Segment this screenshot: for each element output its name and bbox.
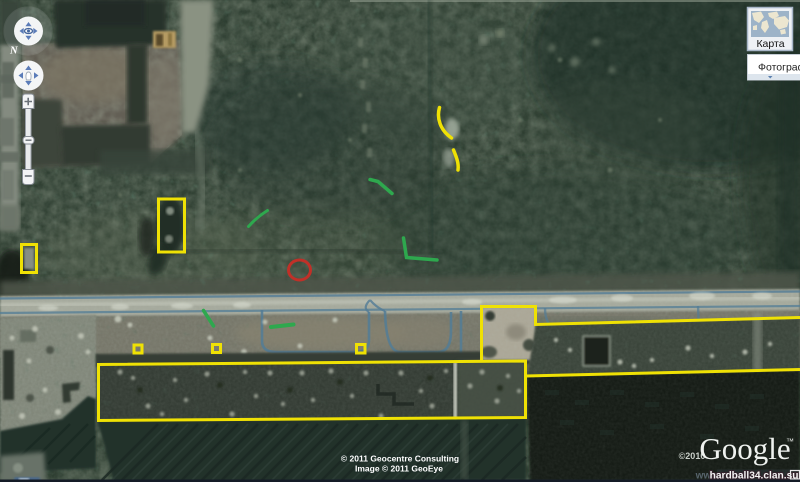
svg-text:Карта: Карта — [756, 38, 784, 50]
svg-text:N: N — [9, 46, 18, 57]
svg-text:™: ™ — [786, 437, 794, 446]
svg-text:Google: Google — [699, 431, 790, 466]
svg-text:© 2011 Geocentre Consulting: © 2011 Geocentre Consulting — [341, 454, 459, 464]
svg-text:Фотограф: Фотограф — [758, 62, 800, 74]
svg-text:Image © 2011 GeoEye: Image © 2011 GeoEye — [355, 464, 443, 474]
